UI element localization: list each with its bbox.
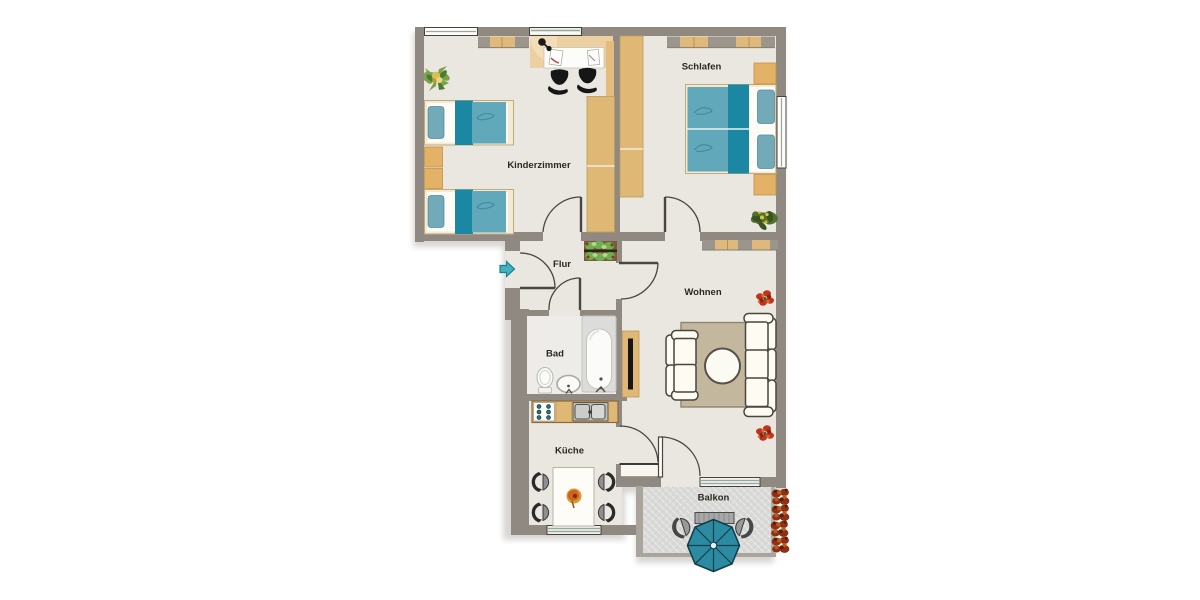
svg-text:Schlafen: Schlafen [682,62,722,73]
svg-text:Bad: Bad [546,349,564,360]
svg-text:Kinderzimmer: Kinderzimmer [507,160,571,171]
svg-text:Flur: Flur [553,259,571,270]
svg-text:Balkon: Balkon [698,493,730,504]
svg-text:Küche: Küche [555,446,584,457]
svg-text:Wohnen: Wohnen [684,287,721,298]
